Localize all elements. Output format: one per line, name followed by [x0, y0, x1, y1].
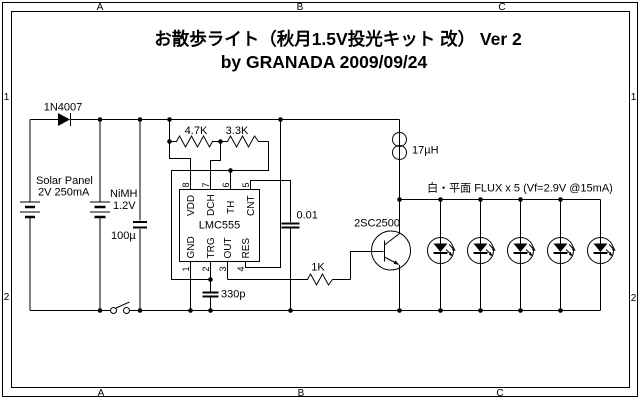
power-switch: [111, 302, 130, 314]
led-bank: 白・平面 FLUX x 5 (Vf=2.9V @15mA): [400, 181, 616, 311]
diode-label: 1N4007: [44, 102, 83, 114]
solar-label-line1: Solar Panel: [36, 175, 93, 187]
capacitor-0.01: 0.01: [282, 210, 318, 311]
led-2: [468, 200, 496, 311]
zone-top-b: B: [297, 2, 304, 13]
resistor-4.7k: 4.7K: [170, 120, 221, 148]
led-4: [548, 200, 576, 311]
solar-panel-symbol: Solar Panel 2V 250mA: [20, 175, 93, 217]
zone-top-c: C: [498, 2, 505, 13]
led-bank-label: 白・平面 FLUX x 5 (Vf=2.9V @15mA): [427, 181, 613, 195]
zone-right-2: 2: [631, 293, 637, 304]
capacitor-0.01-label: 0.01: [297, 210, 318, 222]
zone-left-1: 1: [4, 92, 10, 103]
capacitor-330p-label: 330p: [221, 289, 245, 301]
resistor-4.7k-label: 4.7K: [185, 125, 208, 137]
pin8-name: VDD: [186, 195, 197, 216]
pin2-number: 2: [201, 266, 211, 271]
resistor-3.3k: 3.3K: [221, 125, 269, 147]
pin7-number: 7: [201, 182, 211, 187]
nimh-label-line2: 1.2V: [113, 200, 136, 212]
ic-label: LMC555: [199, 220, 241, 232]
pin3-name: OUT: [223, 237, 234, 258]
pin3-number: 3: [218, 266, 228, 271]
schematic-canvas: A B C A B C 1 2 1 2 お散歩ライト（秋月1.5V投光キット 改…: [0, 0, 640, 400]
title-block: お散歩ライト（秋月1.5V投光キット 改） Ver 2 by GRANADA 2…: [154, 29, 522, 72]
nimh-battery-symbol: NiMH 1.2V: [90, 120, 138, 311]
pin1-name: GND: [186, 236, 197, 258]
diode-1n4007: 1N4007: [44, 102, 83, 127]
resistor-3.3k-label: 3.3K: [226, 125, 249, 137]
led-1: [428, 200, 456, 311]
transistor-label: 2SC2500: [354, 218, 400, 230]
zone-bottom-b: B: [298, 388, 305, 399]
pin2-name: TRG: [206, 237, 217, 258]
capacitor-100u: 100µ: [111, 120, 147, 311]
zone-right-1: 1: [631, 92, 637, 103]
zone-bottom-c: C: [496, 388, 503, 399]
inductor-label: 17µH: [412, 145, 439, 157]
solar-label-line2: 2V 250mA: [38, 187, 90, 199]
pin5-number: 5: [241, 182, 251, 187]
schematic-author: by GRANADA 2009/09/24: [221, 52, 428, 72]
zone-left-2: 2: [4, 292, 10, 303]
schematic-title: お散歩ライト（秋月1.5V投光キット 改） Ver 2: [154, 29, 522, 49]
led-3: [508, 200, 536, 311]
pin6-number: 6: [221, 182, 231, 187]
junction-dots: [98, 117, 563, 313]
capacitor-330p: 330p: [203, 289, 246, 301]
pin7-name: DCH: [206, 194, 217, 216]
led-5: [588, 200, 616, 311]
ic-lmc555: LMC555 8 7 6 5 VDD DCH TH CNT 1 2 3 4 GN…: [180, 182, 260, 271]
pin5-name: CNT: [246, 195, 257, 216]
capacitor-100u-label: 100µ: [111, 230, 136, 242]
pin6-name: TH: [226, 201, 237, 214]
nimh-label-line1: NiMH: [110, 188, 138, 200]
transistor-2sc2500: 2SC2500: [354, 200, 410, 311]
pin8-number: 8: [181, 182, 191, 187]
resistor-1k-label: 1K: [311, 262, 325, 274]
zone-bottom-a: A: [98, 388, 105, 399]
pin4-number: 4: [236, 266, 246, 271]
pin4-name: RES: [241, 238, 252, 259]
zone-top-a: A: [97, 2, 104, 13]
pin1-number: 1: [181, 266, 191, 271]
